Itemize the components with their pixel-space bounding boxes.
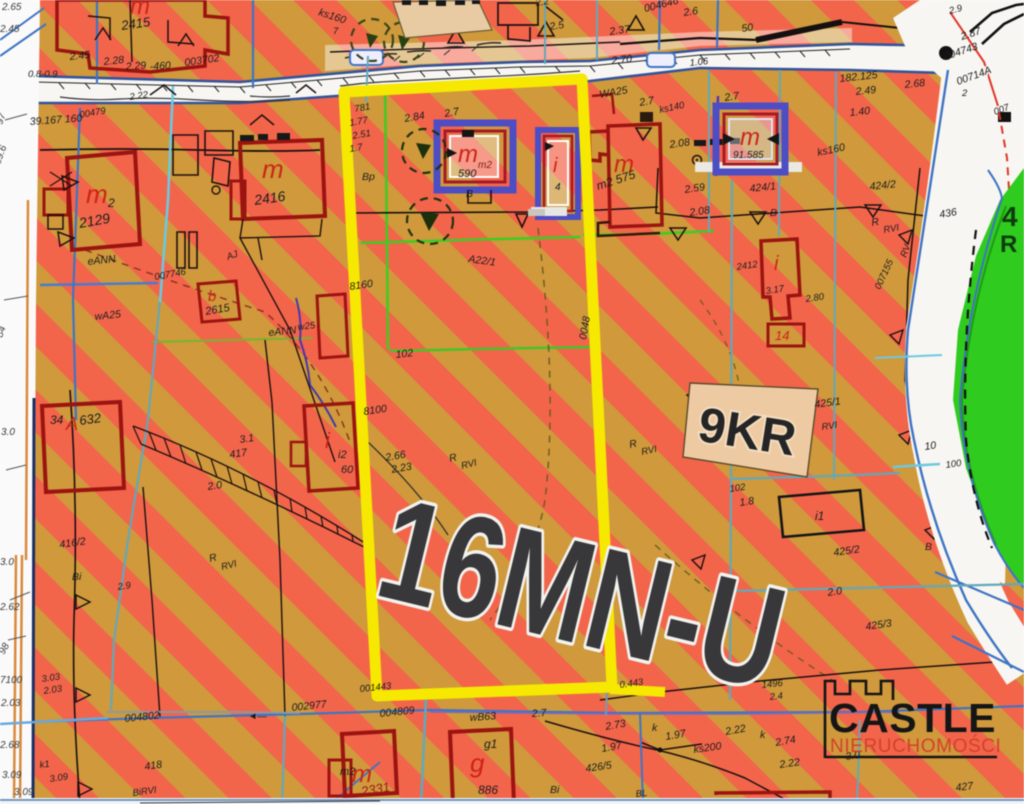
svg-text:2.65: 2.65 <box>1 2 22 13</box>
svg-text:4: 4 <box>1002 201 1018 232</box>
svg-text:2.6: 2.6 <box>682 5 699 19</box>
svg-text:g: g <box>470 748 485 778</box>
svg-text:14: 14 <box>775 328 789 343</box>
svg-text:w25: w25 <box>297 320 316 333</box>
svg-text:632: 632 <box>78 410 102 428</box>
svg-text:◄—: ◄— <box>248 711 267 722</box>
svg-text:R: R <box>1000 231 1017 258</box>
svg-text:m: m <box>86 179 108 209</box>
svg-text:Bi: Bi <box>550 784 560 796</box>
svg-text:2.28: 2.28 <box>102 54 125 68</box>
svg-text:Bp: Bp <box>362 171 375 183</box>
svg-text:2.5: 2.5 <box>548 19 565 33</box>
svg-text:i: i <box>774 253 779 275</box>
svg-text:2.68: 2.68 <box>0 740 20 751</box>
svg-text:i1: i1 <box>815 509 824 523</box>
svg-text:2.0: 2.0 <box>826 585 843 599</box>
svg-text:CASTLE: CASTLE <box>829 695 996 741</box>
svg-text:B: B <box>770 207 777 219</box>
svg-text:886: 886 <box>478 783 498 797</box>
svg-text:2: 2 <box>961 88 968 99</box>
svg-text:418: 418 <box>144 759 163 773</box>
svg-text:3.0: 3.0 <box>1 427 15 438</box>
svg-text:m: m <box>458 141 478 168</box>
svg-text:60: 60 <box>341 464 354 476</box>
svg-text:k1: k1 <box>39 759 50 771</box>
svg-text:2.45: 2.45 <box>0 24 20 35</box>
svg-text:A: A <box>65 414 78 434</box>
svg-text:2.0: 2.0 <box>206 479 223 493</box>
svg-text:91.585: 91.585 <box>733 150 764 161</box>
svg-text:100: 100 <box>945 458 963 471</box>
svg-text:m: m <box>262 154 284 184</box>
svg-text:k: k <box>760 729 766 741</box>
svg-text:4: 4 <box>555 182 561 193</box>
svg-text:m2: m2 <box>478 160 492 171</box>
svg-text:2.7: 2.7 <box>723 90 741 104</box>
svg-text:2.7: 2.7 <box>530 707 548 720</box>
svg-text:i: i <box>553 155 558 177</box>
svg-text:2.03: 2.03 <box>0 698 21 709</box>
svg-text:102: 102 <box>395 347 414 361</box>
svg-text:3.1: 3.1 <box>239 432 255 446</box>
svg-text:m2: m2 <box>340 766 355 778</box>
svg-text:7: 7 <box>333 26 339 37</box>
svg-text:34: 34 <box>50 413 64 427</box>
svg-text:10: 10 <box>924 439 937 453</box>
svg-text:3.09: 3.09 <box>14 787 34 798</box>
svg-text:2: 2 <box>107 196 115 210</box>
svg-text:2.29: 2.29 <box>124 60 146 73</box>
svg-text:-460: -460 <box>149 60 171 73</box>
svg-text:2.68: 2.68 <box>903 77 926 91</box>
svg-text:50: 50 <box>741 21 754 35</box>
svg-text:2.9: 2.9 <box>116 580 132 593</box>
svg-text:2.49: 2.49 <box>854 84 877 98</box>
svg-text:590: 590 <box>458 168 477 180</box>
svg-text:Bi: Bi <box>72 571 82 583</box>
svg-text:k: k <box>652 722 658 734</box>
svg-text:3.09: 3.09 <box>2 770 22 781</box>
svg-text:NIERUCHOMOŚCI: NIERUCHOMOŚCI <box>830 735 1001 757</box>
svg-text:1.40: 1.40 <box>849 105 871 119</box>
svg-text:g1: g1 <box>484 737 497 751</box>
svg-text:B: B <box>466 188 473 200</box>
svg-text:3.0: 3.0 <box>0 557 14 568</box>
svg-text:1.06: 1.06 <box>689 56 709 69</box>
svg-text:B: B <box>925 541 932 553</box>
svg-text:2.62: 2.62 <box>0 602 20 613</box>
svg-text:2.4: 2.4 <box>768 691 783 703</box>
svg-text:2.70: 2.70 <box>610 53 633 67</box>
svg-text:7100: 7100 <box>0 675 23 686</box>
svg-text:i2: i2 <box>338 449 347 461</box>
svg-text:1.8: 1.8 <box>739 495 755 509</box>
svg-text:RVI: RVI <box>821 420 838 433</box>
svg-text:b: b <box>208 288 216 305</box>
svg-text:m: m <box>740 124 760 151</box>
svg-text:1496: 1496 <box>761 678 784 691</box>
svg-text:2.45: 2.45 <box>68 49 91 63</box>
svg-text:0.8-0.9: 0.8-0.9 <box>28 69 58 80</box>
svg-text:wB63: wB63 <box>469 710 496 724</box>
svg-text:102: 102 <box>729 482 747 495</box>
svg-text:427: 427 <box>955 780 975 794</box>
